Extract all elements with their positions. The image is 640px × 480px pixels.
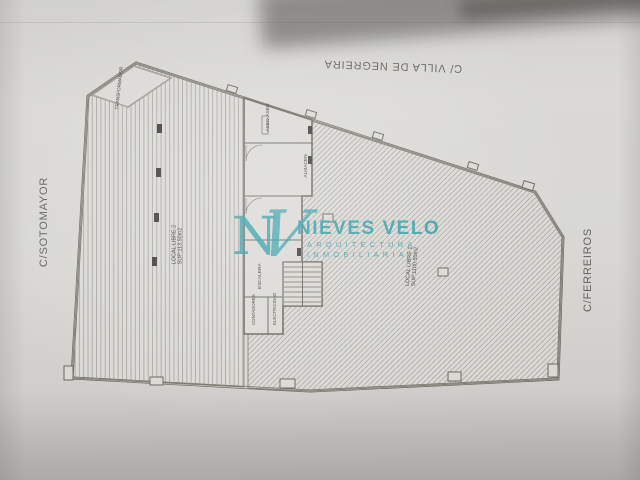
local-2-area xyxy=(72,63,244,387)
watermark-name: NIEVES VELO xyxy=(297,218,440,240)
photo-of-floor-plan: LOCAL LIBRE 2 SUP:113.50m2 LOCAL LIBRE 1… xyxy=(0,0,640,480)
local-2-label: LOCAL LIBRE 2 SUP:113.50m2 xyxy=(171,221,183,265)
paper-fold-line xyxy=(0,22,640,23)
street-label-sotomayor: C/SOTOMAYOR xyxy=(38,176,50,268)
photo-shadow-bottom xyxy=(0,390,640,480)
photo-shadow-left xyxy=(0,0,26,480)
room-label-aseo-2: ASEO xyxy=(266,113,271,137)
watermark-subtitle-arquitectura: ARQUITECTURA xyxy=(307,240,417,249)
local-2-area-text: SUP:113.50m2 xyxy=(177,221,183,265)
street-label-ferreiros: C/FERREIROS xyxy=(582,230,594,312)
photo-shadow-right xyxy=(618,0,640,480)
room-label-electricidad: ELECTRICIDAD xyxy=(273,303,277,325)
room-label-almacen: ALMACEN xyxy=(304,154,309,178)
watermark-subtitle-inmobiliaria: INMOBILIARIA xyxy=(307,250,408,259)
room-label-contadores: CONTADORES xyxy=(252,303,256,325)
